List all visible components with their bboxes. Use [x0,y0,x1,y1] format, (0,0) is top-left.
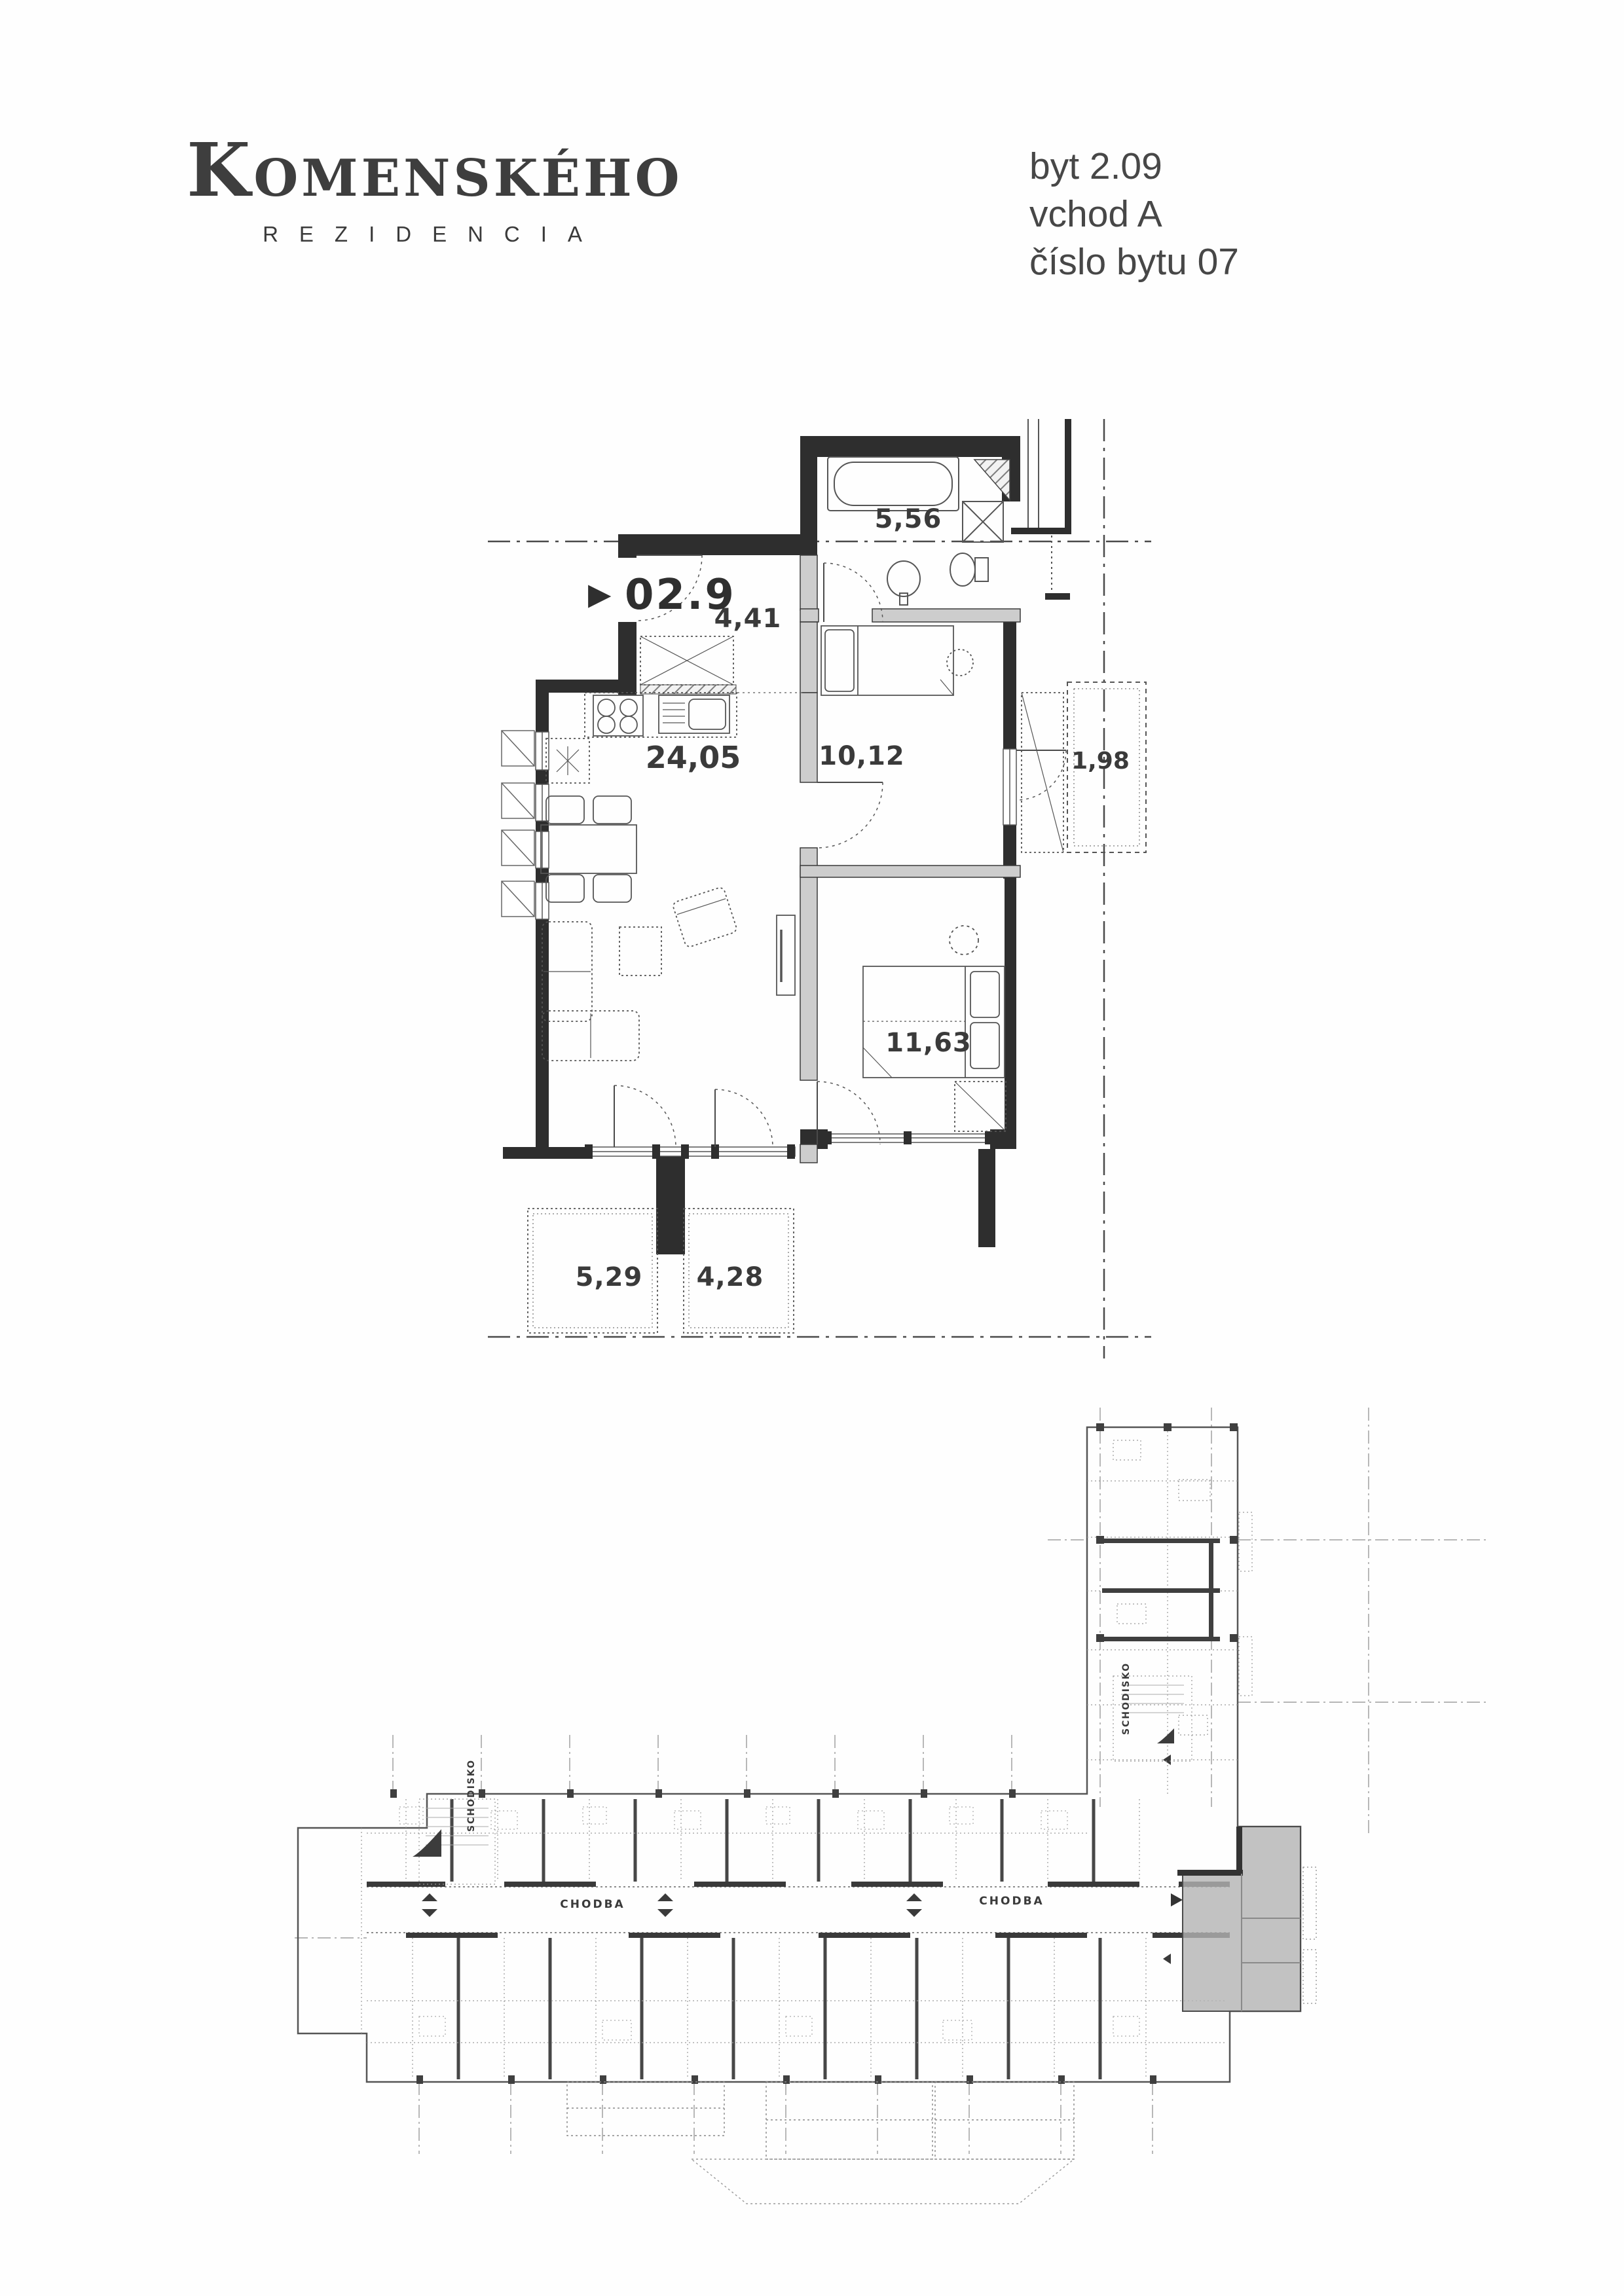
wing-internals [1087,1423,1252,1794]
area-label-bedroom-small: 10,12 [796,741,927,771]
sink [887,561,920,596]
unit-pointer-icon: ▶ [588,576,611,611]
outdoor-spaces [528,682,1146,1333]
casement-symbols [502,731,534,917]
corridor-label-left: CHODBA [544,1898,642,1911]
unit-info-block: byt 2.09 vchod A číslo bytu 07 [1029,143,1239,286]
building-overview-drawing [288,1401,1493,2272]
bedroom-small-furniture [821,626,1063,852]
building-outline [298,1427,1301,2082]
area-label-living-kitchen: 24,05 [619,740,767,775]
hall-wardrobe [640,636,733,685]
stairs-label-left: SCHODISKO [466,1753,477,1832]
toilet [950,553,975,586]
brand-title: Komenského [187,134,658,208]
doors [614,555,1066,1147]
unit-info-entrance: vchod A [1029,191,1239,238]
area-label-loggia: 1,98 [1046,748,1154,774]
floor-plan-sheet: Komenského REZIDENCIA byt 2.09 vchod A č… [0,0,1624,2296]
chair [546,875,584,902]
dining-table [541,825,637,873]
tv-bench [777,915,795,995]
bottom-bays [567,2082,1074,2204]
stair-cores [413,1676,1192,1884]
ceiling-lamp [950,926,978,955]
unit-info-flat: byt 2.09 [1029,143,1239,191]
brand-logo: Komenského REZIDENCIA [187,134,658,247]
stairs-label-right: SCHODISKO [1121,1656,1132,1735]
chair [593,796,631,824]
axis-lines [488,419,1151,1358]
wing-stair-wedge [1157,1728,1174,1743]
corridor-label-right: CHODBA [963,1895,1061,1908]
unit-info-flat-number: číslo bytu 07 [1029,238,1239,286]
single-bed [821,626,953,695]
unit-entry-arrow [1171,1893,1183,1906]
highlighted-unit [1171,1827,1316,2011]
living-furniture [541,796,795,1061]
armchair [672,886,737,948]
area-label-terrace-left: 5,29 [553,1262,665,1292]
corner-sofa [542,922,639,1061]
unit-floor-plan-drawing [458,399,1192,1381]
brand-subtitle: REZIDENCIA [187,222,658,247]
bathtub [828,457,959,511]
kitchen-sink-unit [659,695,729,733]
area-label-bathroom: 5,56 [853,504,964,534]
chair [546,796,584,824]
area-label-terrace-right: 4,28 [674,1262,786,1292]
double-bed [863,966,1005,1078]
side-table [947,649,973,676]
interior-walls [800,555,1020,1163]
chair [593,875,631,902]
area-label-bedroom-main: 11,63 [863,1028,994,1058]
coffee-table [619,927,661,975]
unit-code-label: 02.9 [625,571,736,619]
exterior-walls [503,436,1020,1254]
